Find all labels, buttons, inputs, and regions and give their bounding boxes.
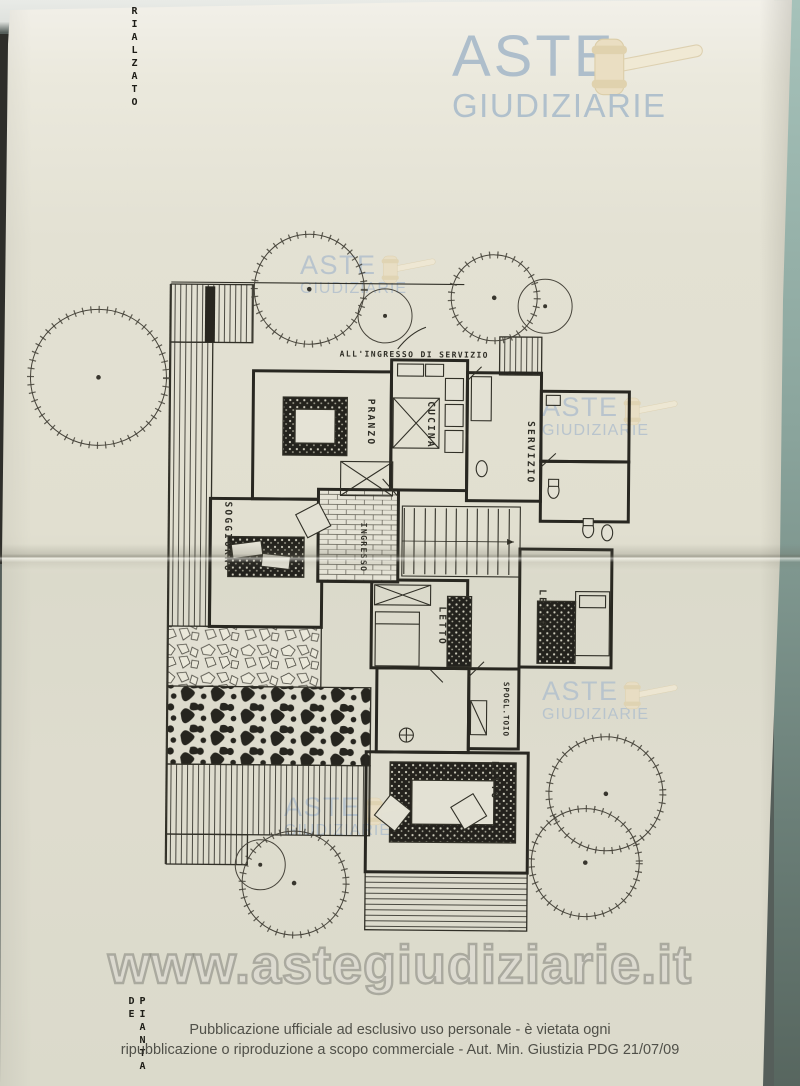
disclaimer-line-1: Pubblicazione ufficiale ad esclusivo uso… xyxy=(0,1020,800,1040)
label-pranzo: PRANZO xyxy=(365,399,376,447)
label-service-entrance: ALL'INGRESSO DI SERVIZIO xyxy=(340,349,489,359)
label-soggiorno: SOGGIORNO xyxy=(222,501,234,572)
staircase xyxy=(402,506,521,577)
label-letto-1: LETTO xyxy=(436,606,447,646)
label-letto-3: LETTO xyxy=(489,761,500,801)
floor-plan-drawing: ALL'INGRESSO DI SERVIZIO PRANZO CUCINA S… xyxy=(0,0,800,1086)
label-servizio: SERVIZIO xyxy=(525,421,537,484)
url-watermark: www.astegiudiziarie.it xyxy=(108,934,692,996)
label-letto-2: LETTO xyxy=(536,589,547,629)
label-spogliatoio: SPOGL.TOIO xyxy=(501,682,510,737)
label-cucina: CUCINA xyxy=(425,401,436,449)
label-ingresso: INGRESSO xyxy=(359,523,368,573)
disclaimer-line-2: ripubblicazione o riproduzione a scopo c… xyxy=(0,1040,800,1060)
scanned-floor-plan-page: ASTE GIUDIZIARIE ASTE GIUDIZIARIE ASTE G… xyxy=(0,0,800,1086)
disclaimer: Pubblicazione ufficiale ad esclusivo uso… xyxy=(0,1020,800,1060)
